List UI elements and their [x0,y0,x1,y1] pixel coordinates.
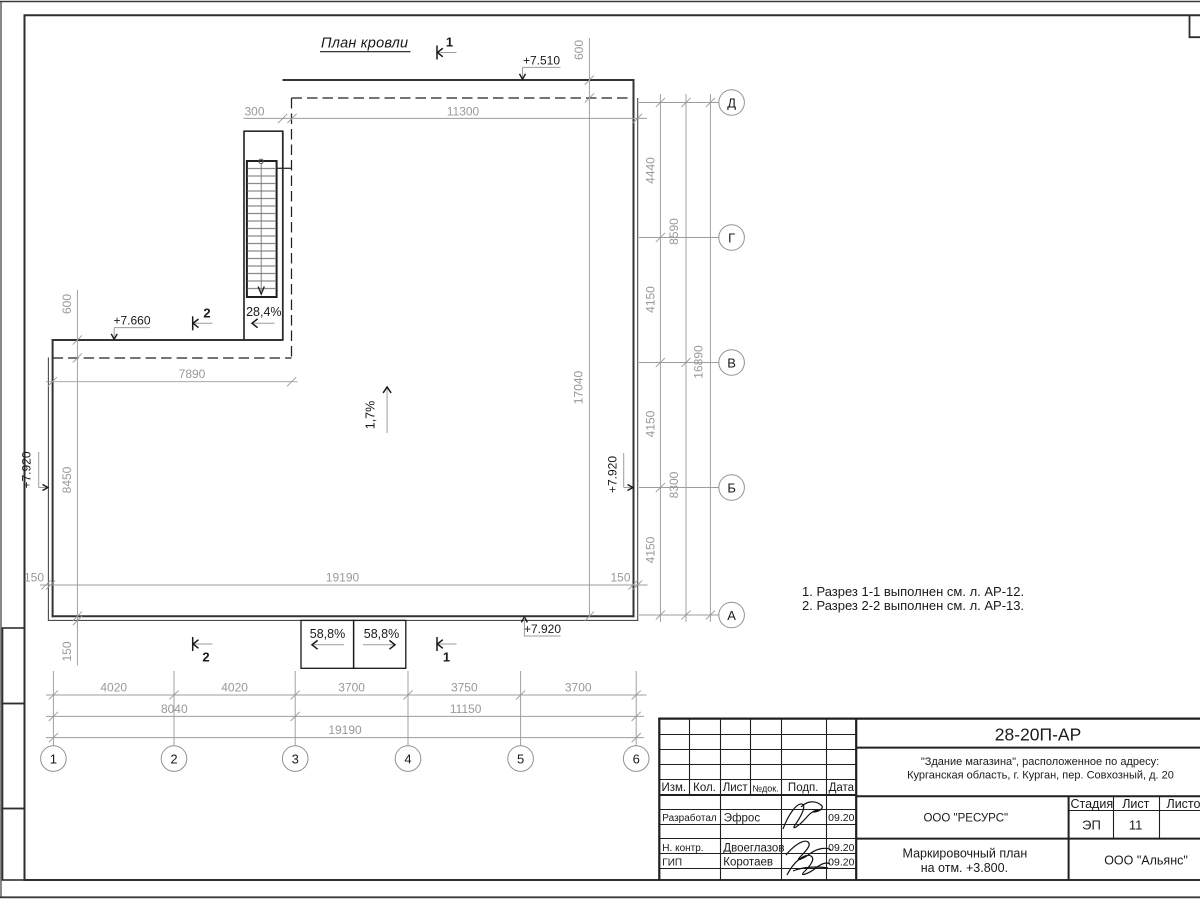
svg-text:09.20: 09.20 [828,812,854,824]
svg-text:2: 2 [203,305,210,320]
svg-text:11300: 11300 [447,105,480,119]
svg-text:+7.920: +7.920 [524,622,561,636]
svg-text:Лист: Лист [1122,797,1149,811]
svg-text:Г: Г [728,230,735,245]
svg-text:19190: 19190 [326,571,360,585]
svg-text:Стадия: Стадия [1070,797,1113,811]
svg-text:Листов: Листов [1167,797,1200,811]
svg-text:8450: 8450 [60,466,74,493]
svg-text:4020: 4020 [100,681,127,695]
svg-text:1: 1 [443,650,450,665]
svg-text:28,4%: 28,4% [246,305,281,319]
svg-text:150: 150 [610,571,630,585]
svg-text:ГИП: ГИП [662,857,682,868]
svg-text:8590: 8590 [667,218,681,245]
svg-text:ООО "РЕСУРС": ООО "РЕСУРС" [923,813,1008,825]
svg-text:Коротаев: Коротаев [723,857,773,869]
svg-text:А: А [727,608,736,623]
svg-text:16890: 16890 [692,345,706,379]
svg-text:Н. контр.: Н. контр. [662,843,703,854]
svg-text:Маркировочный план: Маркировочный план [903,847,1028,861]
svg-text:Дата: Дата [829,782,855,794]
svg-text:Эфрос: Эфрос [724,812,761,824]
svg-text:1: 1 [50,751,57,766]
svg-text:09.20: 09.20 [828,856,854,868]
svg-text:+7.660: +7.660 [113,314,150,328]
svg-text:6: 6 [633,751,640,766]
svg-text:8040: 8040 [161,702,188,716]
svg-text:11150: 11150 [450,702,482,716]
svg-text:600: 600 [572,40,586,60]
svg-text:5: 5 [517,751,524,766]
svg-text:4: 4 [404,751,411,766]
svg-text:17040: 17040 [572,370,586,404]
svg-text:+7.510: +7.510 [523,54,560,68]
svg-text:4440: 4440 [643,157,657,184]
svg-text:+7.920: +7.920 [19,451,33,488]
svg-text:11: 11 [1129,818,1143,833]
svg-text:1. Разрез 1-1 выполнен см. л.: 1. Разрез 1-1 выполнен см. л. АР-12. [802,584,1024,599]
svg-text:В: В [727,355,736,370]
svg-text:на отм. +3.800.: на отм. +3.800. [921,861,1008,875]
svg-text:Д: Д [727,95,736,110]
svg-text:7890: 7890 [179,367,206,381]
svg-text:8300: 8300 [667,471,681,498]
svg-text:2: 2 [170,751,177,766]
svg-text:Разработал: Разработал [662,812,717,824]
svg-text:09.20: 09.20 [828,842,854,854]
svg-text:3: 3 [292,751,299,766]
svg-text:2: 2 [202,650,209,665]
svg-text:Кол.: Кол. [693,782,716,794]
svg-text:1: 1 [446,35,453,50]
svg-text:28-20П-АР: 28-20П-АР [995,724,1082,744]
svg-text:4150: 4150 [643,536,657,563]
svg-text:1,7%: 1,7% [364,401,378,430]
svg-text:3700: 3700 [565,681,592,695]
svg-text:ООО "Альянс": ООО "Альянс" [1104,854,1188,868]
svg-text:Двоеглазов: Двоеглазов [723,843,784,855]
svg-text:ЭП: ЭП [1082,818,1101,833]
svg-text:3750: 3750 [451,681,478,695]
svg-text:"Здание магазина", расположенн: "Здание магазина", расположенное по адре… [921,756,1159,768]
svg-text:58,8%: 58,8% [310,627,345,641]
svg-text:№док.: №док. [752,783,778,793]
svg-text:150: 150 [60,641,74,661]
svg-text:Изм.: Изм. [661,782,686,794]
svg-text:600: 600 [60,294,74,314]
svg-text:Подп.: Подп. [788,782,819,794]
svg-text:19190: 19190 [328,723,362,737]
svg-text:Курганская область, г. Курган,: Курганская область, г. Курган, пер. Совх… [907,770,1174,782]
svg-text:Б: Б [727,480,736,495]
svg-text:300: 300 [244,105,264,119]
svg-text:4150: 4150 [643,286,657,313]
svg-text:+7.920: +7.920 [606,456,620,493]
svg-text:4150: 4150 [643,410,657,437]
svg-text:58,8%: 58,8% [364,627,399,641]
svg-text:2. Разрез 2-2 выполнен см. л.: 2. Разрез 2-2 выполнен см. л. АР-13. [802,598,1024,613]
svg-text:Лист: Лист [723,782,749,794]
svg-text:План кровли: План кровли [321,36,408,52]
svg-text:4020: 4020 [221,681,248,695]
svg-text:3700: 3700 [338,681,365,695]
svg-text:150: 150 [24,571,44,585]
